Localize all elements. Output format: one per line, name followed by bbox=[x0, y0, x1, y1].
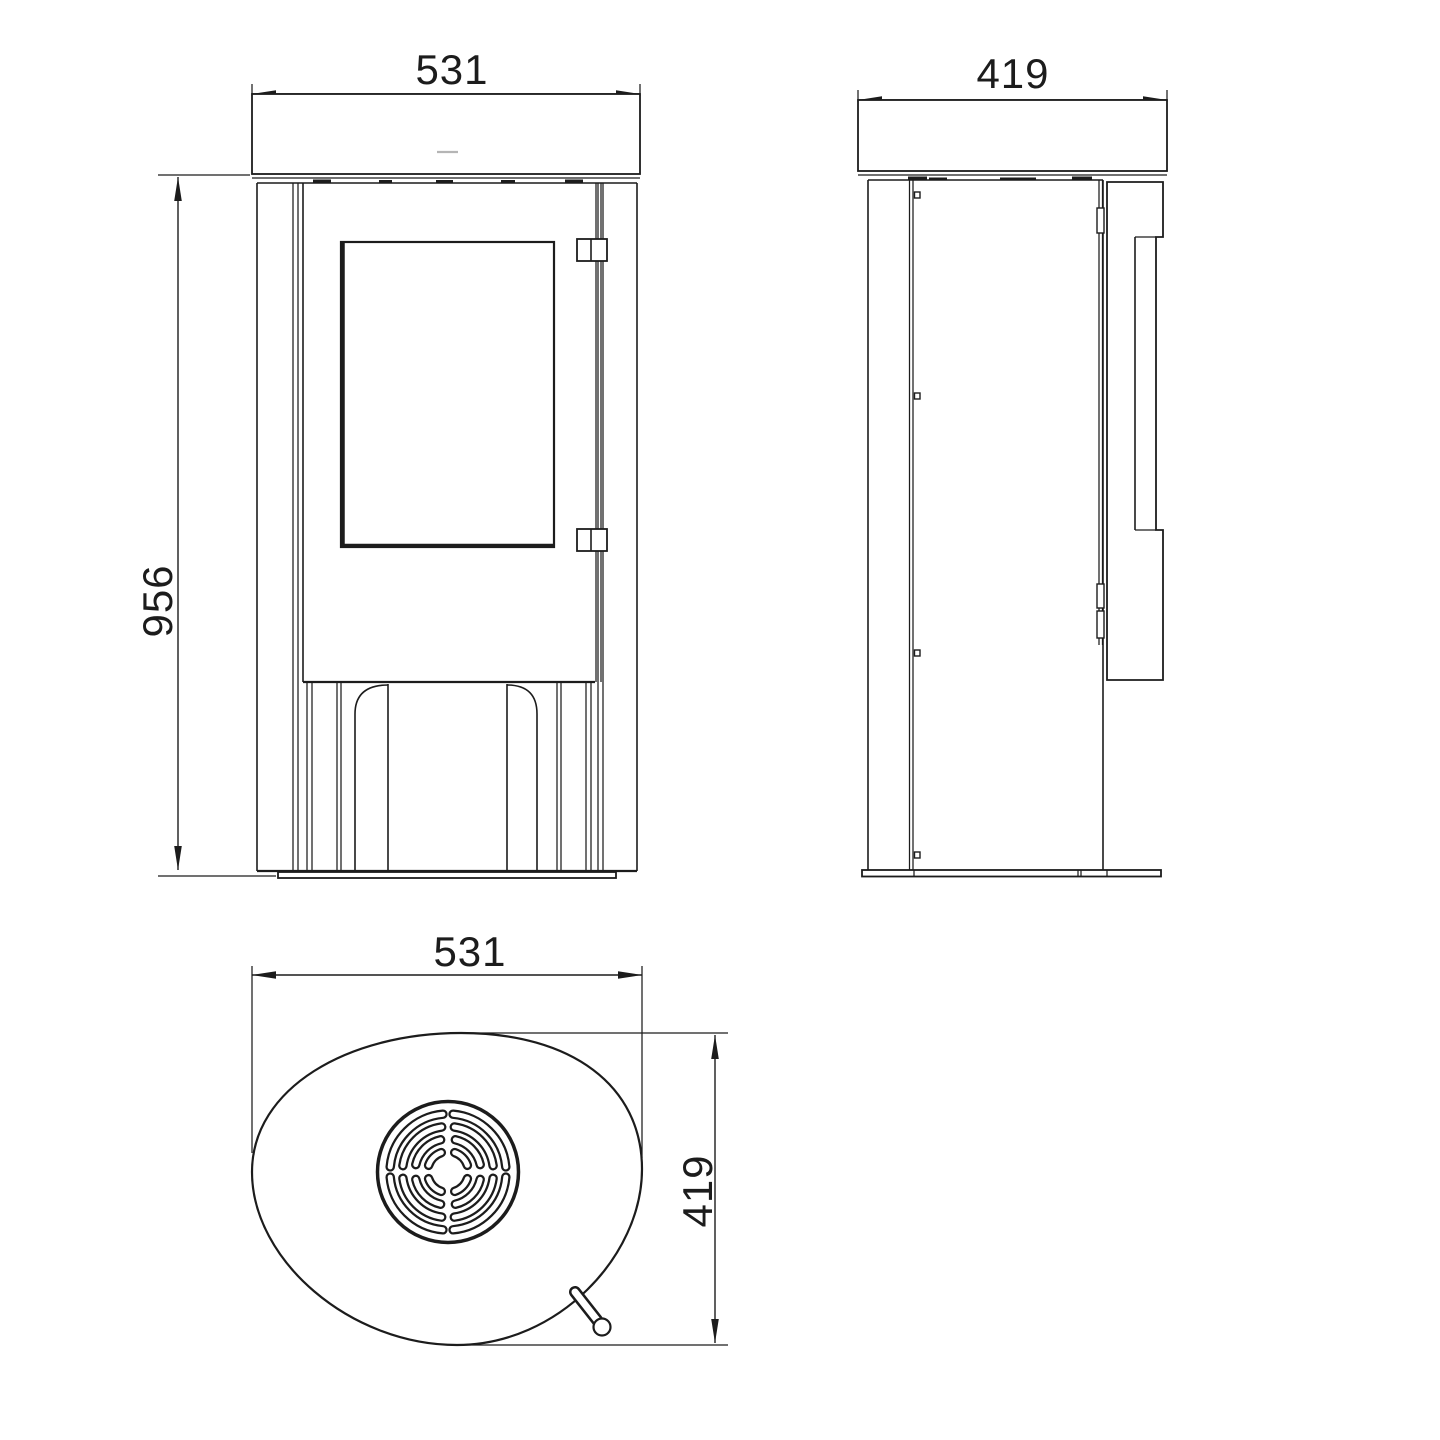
front-pedestal bbox=[307, 683, 591, 870]
stove-dimension-drawing: 531 956 bbox=[0, 0, 1440, 1440]
top-view: 531 419 bbox=[252, 928, 728, 1345]
side-screw bbox=[915, 192, 921, 198]
front-door bbox=[303, 183, 607, 682]
top-depth-label: 419 bbox=[674, 1154, 721, 1227]
front-door-hinge-bottom bbox=[577, 529, 607, 551]
hotplate-grille bbox=[378, 1102, 519, 1243]
side-depth-dimension: 419 bbox=[858, 50, 1167, 104]
side-screw bbox=[915, 852, 921, 858]
side-depth-label: 419 bbox=[976, 50, 1049, 97]
front-width-label: 531 bbox=[415, 46, 488, 93]
grille-slots bbox=[390, 1114, 506, 1230]
side-base-plate bbox=[862, 870, 1161, 877]
side-hinge-mark bbox=[1097, 584, 1104, 608]
front-height-label: 956 bbox=[134, 564, 181, 637]
top-width-dimension: 531 bbox=[252, 928, 642, 1158]
side-hinge-mark bbox=[1097, 611, 1104, 638]
side-door-profile bbox=[1107, 182, 1163, 680]
front-view: 531 956 bbox=[134, 46, 640, 878]
side-body bbox=[868, 180, 1103, 870]
drawing-canvas: 531 956 bbox=[0, 0, 1440, 1440]
front-base-plate bbox=[278, 872, 616, 878]
top-width-label: 531 bbox=[433, 928, 506, 975]
side-view: 419 bbox=[858, 50, 1167, 877]
front-door-hinge-top bbox=[577, 239, 607, 261]
front-glass-window bbox=[341, 242, 554, 547]
side-top-plate bbox=[858, 100, 1167, 181]
side-screw bbox=[915, 650, 921, 656]
side-hinge-mark bbox=[1097, 208, 1104, 233]
front-top-plate bbox=[252, 94, 640, 184]
front-body bbox=[257, 183, 637, 871]
top-depth-dimension: 419 bbox=[457, 1033, 728, 1345]
front-height-dimension: 956 bbox=[134, 175, 276, 876]
front-width-dimension: 531 bbox=[252, 46, 640, 98]
side-screw bbox=[915, 393, 921, 399]
side-door-edge bbox=[1097, 180, 1104, 645]
door-handle bbox=[575, 1292, 611, 1336]
